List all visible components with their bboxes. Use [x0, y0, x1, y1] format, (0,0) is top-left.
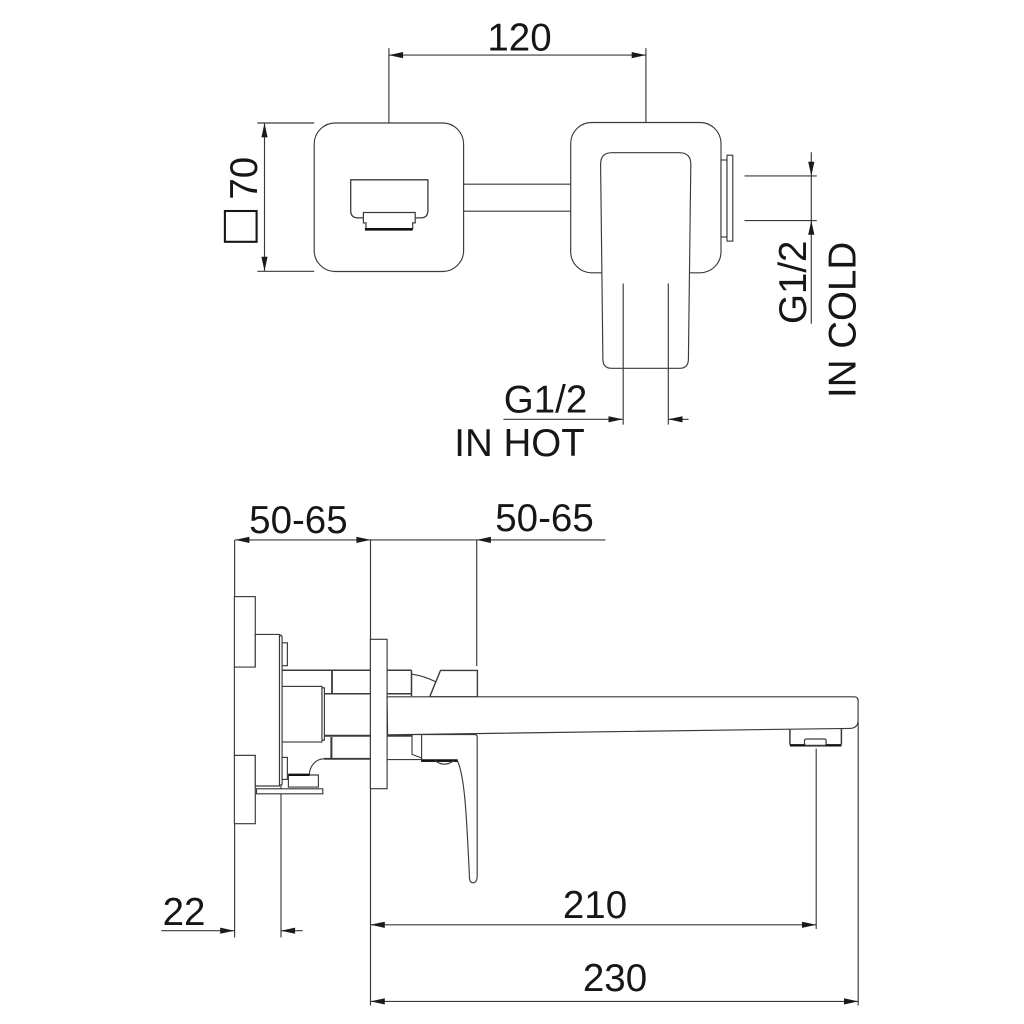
svg-text:22: 22: [163, 891, 206, 934]
svg-text:230: 230: [583, 957, 647, 1000]
svg-text:120: 120: [487, 16, 551, 59]
svg-text:70: 70: [223, 157, 266, 200]
svg-text:50-65: 50-65: [249, 499, 347, 542]
svg-text:210: 210: [563, 884, 627, 927]
svg-text:50-65: 50-65: [495, 497, 593, 540]
svg-text:G1/2: G1/2: [504, 379, 587, 422]
svg-text:IN HOT: IN HOT: [454, 422, 584, 465]
svg-text:G1/2: G1/2: [772, 241, 815, 324]
svg-text:IN COLD: IN COLD: [822, 242, 865, 398]
